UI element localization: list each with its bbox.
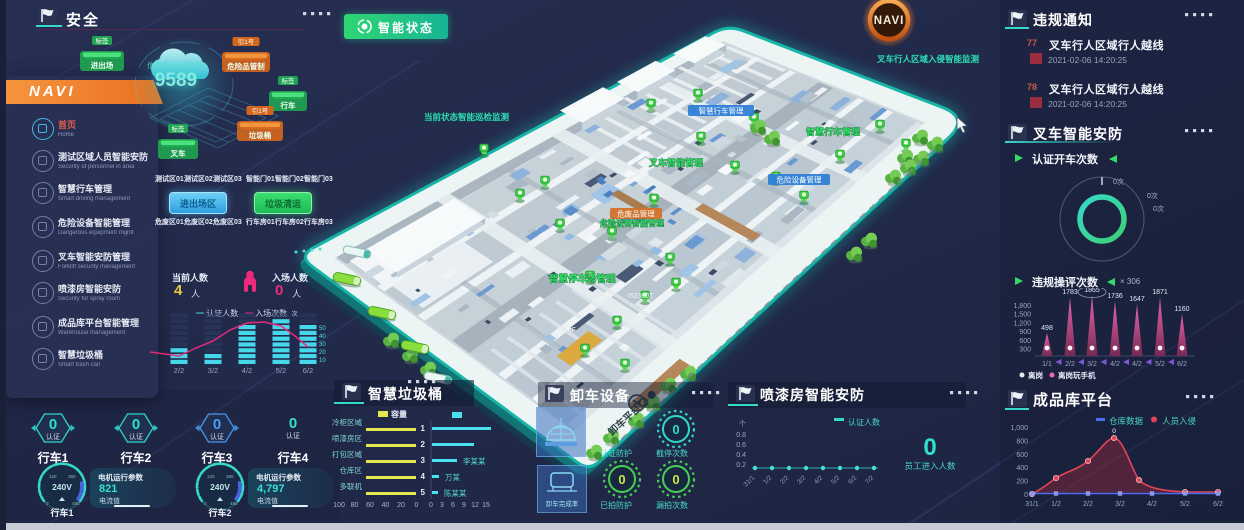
svg-text:2/2: 2/2 [174,366,184,375]
svg-text:240V: 240V [210,482,230,492]
svg-text:0: 0 [213,416,221,433]
svg-text:1,200: 1,200 [1013,320,1031,327]
svg-text:360: 360 [68,474,76,479]
svg-text:李某某: 李某某 [463,456,486,466]
svg-text:3/2: 3/2 [796,474,808,486]
svg-text:智慧行车管理: 智慧行车管理 [699,106,744,116]
svg-text:5/2: 5/2 [830,474,842,486]
svg-text:1,800: 1,800 [1013,303,1031,310]
svg-text:900: 900 [1019,329,1031,336]
svg-text:20: 20 [397,502,405,509]
svg-text:仓库数据: 仓库数据 [1109,416,1144,426]
svg-text:9: 9 [462,502,466,509]
svg-text:1871: 1871 [1152,289,1168,296]
svg-text:6: 6 [451,502,455,509]
svg-text:1865: 1865 [1084,288,1100,294]
svg-text:120: 120 [207,474,215,479]
svg-text:喷漆房区: 喷漆房区 [332,433,362,443]
svg-text:4/2: 4/2 [813,474,825,486]
svg-text:2: 2 [421,440,426,449]
svg-text:0: 0 [429,502,433,509]
svg-text:认证人数: 认证人数 [848,417,880,427]
svg-text:人员入侵: 人员入侵 [1162,416,1197,426]
svg-text:离岗: 离岗 [1028,370,1043,380]
svg-text:4/2: 4/2 [1110,361,1120,368]
svg-text:1/2: 1/2 [1051,501,1061,508]
svg-text:15: 15 [482,502,490,509]
svg-text:NAVI: NAVI [874,15,905,27]
svg-text:5/2: 5/2 [1180,501,1190,508]
svg-text:离岗玩手机: 离岗玩手机 [1058,370,1096,380]
svg-text:0: 0 [289,415,297,432]
svg-text:个: 个 [739,420,746,428]
svg-text:认证: 认证 [46,432,60,441]
svg-text:危废品管理: 危废品管理 [617,209,655,219]
svg-text:0: 0 [1112,428,1116,435]
svg-text:7/2: 7/2 [864,474,876,486]
svg-text:2/2: 2/2 [779,474,791,486]
svg-text:叉车智能管理: 叉车智能管理 [648,157,703,168]
svg-text:冷柜区域: 冷柜区域 [332,417,362,427]
svg-text:1160: 1160 [1174,306,1189,313]
svg-text:4534F: 4534F [556,327,576,334]
svg-text:0: 0 [1024,492,1028,499]
svg-text:陈某某: 陈某某 [444,488,467,498]
svg-text:智慧行车管理: 智慧行车管理 [806,126,860,137]
svg-text:100: 100 [333,502,345,509]
svg-text:4/2: 4/2 [242,366,252,375]
svg-text:0: 0 [415,502,419,509]
svg-text:1,000: 1,000 [1010,425,1028,432]
svg-text:4/2: 4/2 [1132,361,1142,368]
svg-text:498: 498 [1041,325,1053,332]
svg-text:0: 0 [618,472,625,487]
svg-text:1,500: 1,500 [1013,312,1031,319]
svg-text:5: 5 [421,488,426,497]
svg-text:叉车行人区域入侵智能监测: 叉车行人区域入侵智能监测 [876,54,980,64]
svg-text:1: 1 [421,424,426,433]
svg-text:360: 360 [226,474,234,479]
svg-text:0.2: 0.2 [736,462,746,469]
svg-text:600: 600 [1019,338,1031,345]
svg-text:当前状态智能巡检监测: 当前状态智能巡检监测 [424,112,510,122]
svg-text:1/2: 1/2 [762,474,774,486]
svg-text:6/2: 6/2 [1213,501,1223,508]
svg-text:智慧停车场管理: 智慧停车场管理 [549,273,616,285]
svg-text:5/2: 5/2 [1155,361,1165,368]
svg-text:2/2: 2/2 [1065,361,1075,368]
svg-text:10: 10 [319,358,326,364]
svg-text:3: 3 [440,502,444,509]
svg-text:300: 300 [1019,347,1031,354]
svg-text:危险设备管理: 危险设备管理 [777,175,822,185]
svg-text:3/2: 3/2 [208,366,218,375]
svg-text:6/2: 6/2 [303,366,313,375]
svg-text:800: 800 [1016,438,1028,445]
svg-text:200: 200 [1016,479,1028,486]
svg-text:1736: 1736 [1107,293,1123,300]
svg-text:50: 50 [319,326,326,332]
svg-text:打包区域: 打包区域 [332,449,362,459]
svg-text:0次: 0次 [1113,177,1124,186]
svg-text:4: 4 [421,472,426,481]
svg-text:0次: 0次 [1153,204,1164,213]
svg-text:多联机: 多联机 [340,481,363,491]
svg-text:120: 120 [49,474,57,479]
svg-text:危险设备智能管理: 危险设备智能管理 [599,218,664,228]
svg-text:1/1: 1/1 [1042,361,1052,368]
svg-text:30: 30 [319,342,326,348]
svg-text:0.6: 0.6 [736,442,746,449]
svg-text:0: 0 [49,416,57,433]
svg-text:0: 0 [672,472,679,487]
svg-text:31/1: 31/1 [1025,501,1039,508]
svg-text:0次: 0次 [1147,191,1158,200]
svg-text:2/2: 2/2 [1083,501,1093,508]
svg-text:i52360T: i52360T [628,293,654,300]
svg-text:认证: 认证 [210,432,224,441]
svg-text:3/2: 3/2 [1087,361,1097,368]
svg-text:1647: 1647 [1129,296,1145,303]
svg-text:认证: 认证 [129,432,143,441]
svg-text:0: 0 [672,422,679,437]
svg-text:1783: 1783 [1062,289,1078,296]
svg-text:6/2: 6/2 [847,474,859,486]
svg-text:40: 40 [382,502,390,509]
svg-text:3: 3 [421,456,426,465]
svg-text:31/1: 31/1 [743,474,757,488]
svg-text:240V: 240V [52,482,72,492]
svg-text:5/2: 5/2 [276,366,286,375]
svg-text:3/2: 3/2 [1115,501,1125,508]
svg-text:80: 80 [351,502,359,509]
svg-text:600: 600 [1016,452,1028,459]
svg-text:0.8: 0.8 [736,432,746,439]
svg-text:仓库区: 仓库区 [340,465,363,475]
svg-text:0: 0 [132,416,140,433]
svg-text:12: 12 [471,502,479,509]
svg-text:0.4: 0.4 [736,452,746,459]
svg-text:认证: 认证 [286,431,300,440]
svg-text:万某: 万某 [445,473,460,482]
svg-text:6/2: 6/2 [1177,361,1187,368]
svg-text:60: 60 [366,502,374,509]
svg-text:40: 40 [319,334,326,340]
svg-text:4/2: 4/2 [1147,501,1157,508]
svg-text:20: 20 [319,350,326,356]
svg-text:400: 400 [1016,465,1028,472]
